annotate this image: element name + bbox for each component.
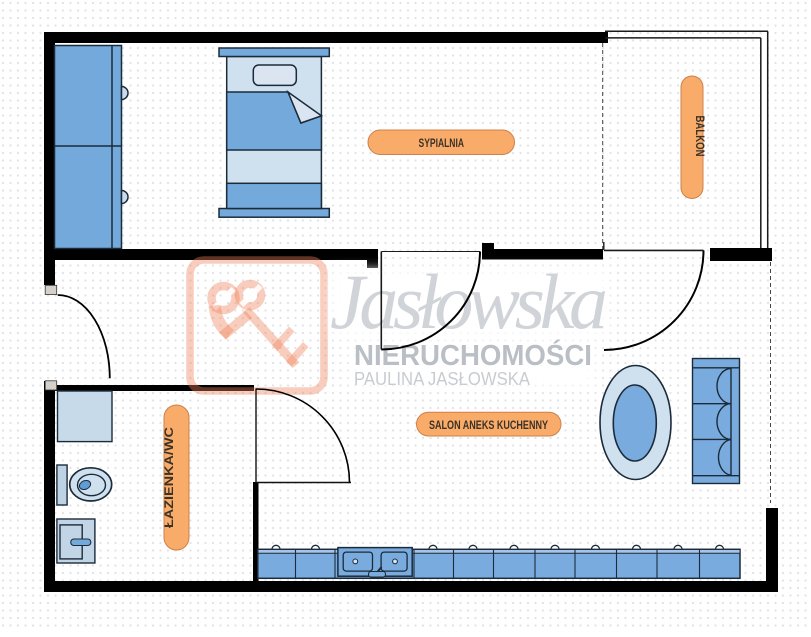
svg-text:Jasłowska: Jasłowska	[330, 258, 608, 345]
svg-text:PAULINA JASŁOWSKA: PAULINA JASŁOWSKA	[354, 368, 531, 389]
svg-text:SALON ANEKS KUCHENNY: SALON ANEKS KUCHENNY	[429, 420, 548, 432]
svg-text:BALKON: BALKON	[693, 116, 705, 157]
svg-text:ŁAZIENKA/WC: ŁAZIENKA/WC	[164, 427, 176, 528]
svg-text:SYPIALNIA: SYPIALNIA	[419, 138, 465, 150]
